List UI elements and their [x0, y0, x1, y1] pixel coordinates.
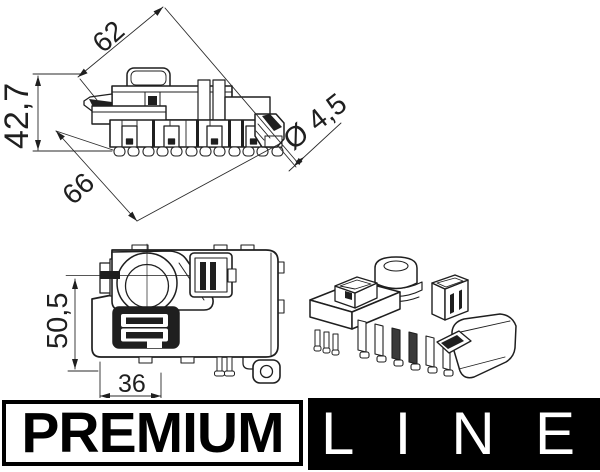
premium-label: PREMIUM [21, 405, 283, 462]
dim-height-427-label: 42,7 [0, 83, 36, 149]
isometric-view-drawing [310, 257, 516, 378]
iso-left-fins [314, 330, 339, 355]
dim-height-505-label: 50,5 [42, 293, 74, 349]
technical-drawing-page: 62 42,7 66 Ø 4,5 [0, 0, 600, 472]
line-letter-l: L [321, 404, 354, 464]
line-letter-i: I [395, 404, 412, 464]
line-badge: L I N E [308, 398, 600, 470]
pin-feet [114, 147, 283, 156]
brand-banner: PREMIUM L I N E [0, 398, 600, 470]
premium-badge: PREMIUM [2, 400, 303, 466]
technical-drawing: 62 42,7 66 Ø 4,5 [0, 0, 600, 398]
line-letter-n: N [451, 404, 494, 464]
front-view-drawing [66, 244, 284, 383]
iso-center-fins [358, 320, 453, 376]
dim-width-62-label: 62 [86, 15, 130, 59]
dim-width-36-label: 36 [118, 370, 146, 398]
line-letter-e: E [535, 404, 575, 464]
